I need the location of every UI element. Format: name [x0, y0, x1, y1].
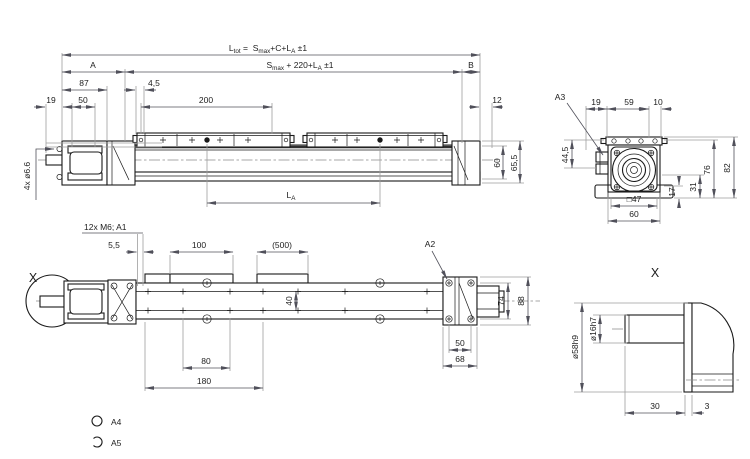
carriage-2-center-hole [377, 137, 382, 142]
head-plate-bottom [108, 280, 136, 324]
dim-100-label: 100 [192, 240, 206, 250]
dim-74-label: 74 [496, 296, 506, 306]
dim-65-5-label: 65,5 [509, 154, 519, 171]
dim-4-5-label: 4,5 [148, 78, 160, 88]
label-a2: A2 [425, 239, 436, 249]
dim-50-label: 50 [455, 338, 465, 348]
dim-10-label: 10 [653, 97, 663, 107]
carriage-1 [133, 133, 294, 147]
dim-sq47-label: □47 [627, 194, 642, 204]
dim-a-label: A [90, 60, 96, 70]
dim-44-5-label: 44,5 [560, 146, 570, 163]
motor-shaft [46, 155, 62, 165]
carriage-2 [303, 133, 447, 147]
dim-19-label: 19 [591, 97, 601, 107]
view-x-marker: X [29, 271, 38, 285]
label-a3: A3 [555, 92, 566, 102]
carriage-1-center-hole [204, 137, 209, 142]
dim-180-label: 180 [197, 376, 211, 386]
dim-76-label: 76 [702, 165, 712, 175]
dim-500-label: (500) [272, 240, 292, 250]
dim-200-label: 200 [199, 95, 213, 105]
dim-31-label: 31 [688, 182, 698, 192]
dim-59-label: 59 [624, 97, 634, 107]
dim-60-label: 60 [629, 209, 639, 219]
legend-a4-label: A4 [111, 417, 122, 427]
dim-17-label: 17 [667, 187, 677, 197]
dim-5-5-label: 5,5 [108, 240, 120, 250]
dim-50-label: 50 [78, 95, 88, 105]
end-block [452, 141, 480, 185]
thread-label: 12x M6; A1 [84, 222, 127, 232]
dim-d16-label: ø16h7 [588, 317, 598, 341]
drive-head [107, 141, 135, 185]
dim-80-label: 80 [201, 356, 211, 366]
detail-x-marker: X [651, 266, 660, 280]
dim-12-label: 12 [492, 95, 502, 105]
dim-40-label: 40 [284, 296, 294, 306]
dim-68-label: 68 [455, 354, 465, 364]
dim-30-label: 30 [650, 401, 660, 411]
legend-a5-label: A5 [111, 438, 122, 448]
dim-d58-label: ø58h9 [570, 335, 580, 359]
dim-60-label: 60 [492, 158, 502, 168]
mounting-holes-label: 4x ø6.6 [22, 162, 32, 191]
dim-19-label: 19 [46, 95, 56, 105]
technical-drawing-page: Ltot = Smax+C+LA ±1 Smax + 220+LA ±1 A B… [0, 0, 750, 459]
dim-88-label: 88 [516, 296, 526, 306]
dim-82-label: 82 [722, 163, 732, 173]
motor-shaft-bottom [40, 296, 64, 307]
technical-drawing: Ltot = Smax+C+LA ±1 Smax + 220+LA ±1 A B… [0, 0, 750, 459]
dim-87-label: 87 [79, 78, 89, 88]
dim-b-label: B [468, 60, 474, 70]
dim-3-label: 3 [705, 401, 710, 411]
